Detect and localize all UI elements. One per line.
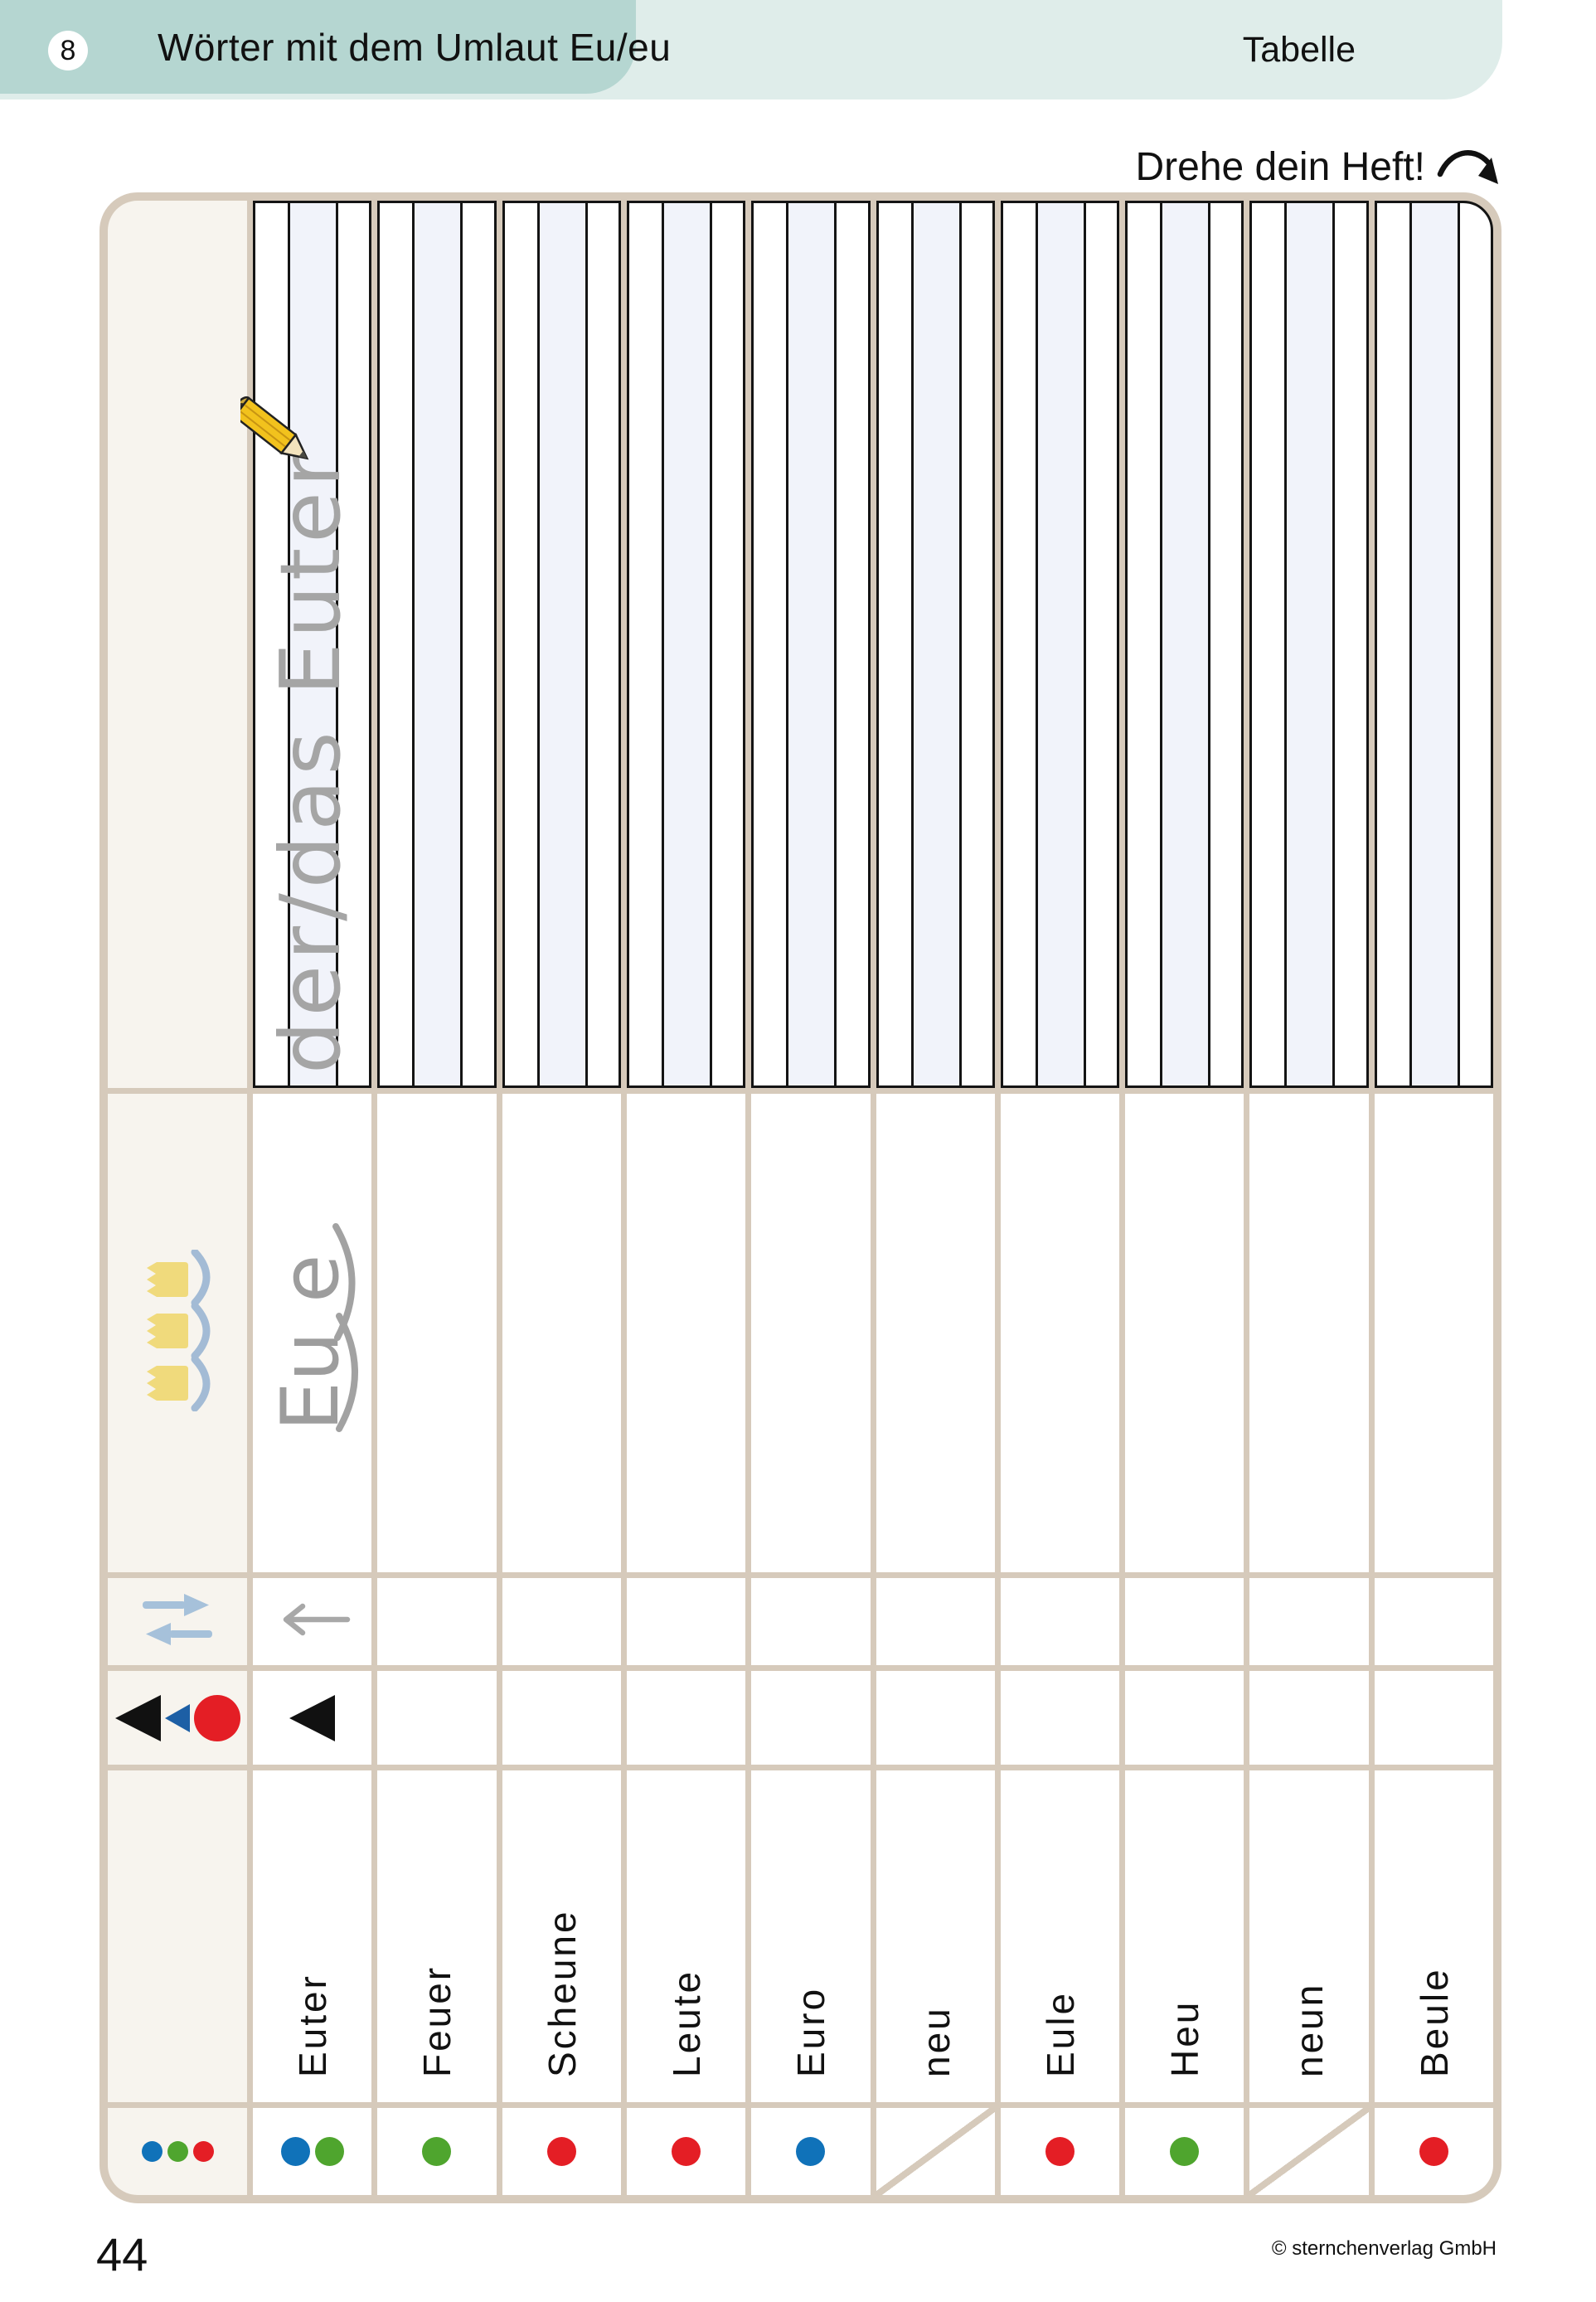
word-cell: Feuer <box>377 1770 496 2102</box>
dot-group <box>751 2108 870 2195</box>
lineature-cell <box>751 201 870 1088</box>
empty-cell <box>1249 1094 1368 1572</box>
header-cell-writing-row <box>108 201 247 1088</box>
header-cell-swap-row <box>108 1578 247 1665</box>
pencil-icon <box>240 376 336 465</box>
word-cell: Scheune <box>502 1770 621 2102</box>
page-number: 44 <box>96 2227 148 2281</box>
dot-cell <box>627 2108 745 2195</box>
dot-group <box>1125 2108 1244 2195</box>
empty-cell <box>1125 1578 1244 1665</box>
word-cell: neu <box>876 1770 995 2102</box>
word-label: Eule <box>1001 1770 1119 2102</box>
empty-cell <box>1249 1578 1368 1665</box>
empty-cell <box>751 1671 870 1765</box>
word-cell: Heu <box>1125 1770 1244 2102</box>
copyright-notice: © sternchenverlag GmbH <box>1272 2237 1497 2261</box>
lineature-cell <box>627 201 745 1088</box>
empty-cell <box>1001 1671 1119 1765</box>
header-cell-marker-row <box>108 1671 247 1765</box>
word-cell: Beule <box>1375 1770 1493 2102</box>
empty-cell <box>751 1578 870 1665</box>
empty-cell <box>627 1671 745 1765</box>
swap-example-cell <box>253 1578 371 1665</box>
syllable-example-graphic: Eu e <box>256 1220 367 1441</box>
word-cell: neun <box>1249 1770 1368 2102</box>
word-label: Leute <box>627 1770 745 2102</box>
word-cell: Euro <box>751 1770 870 2102</box>
empty-cell <box>1375 1578 1493 1665</box>
curved-arrow-icon <box>1437 143 1506 197</box>
dot-green <box>422 2137 451 2166</box>
empty-cell <box>627 1094 745 1572</box>
word-label: Heu <box>1125 1770 1244 2102</box>
empty-cell <box>1001 1578 1119 1665</box>
word-label: Euter <box>253 1770 371 2102</box>
empty-cell <box>1125 1671 1244 1765</box>
empty-cell <box>377 1578 496 1665</box>
lineature-cell <box>502 201 621 1088</box>
black-triangle-icon <box>115 1695 161 1741</box>
empty-cell <box>1375 1094 1493 1572</box>
dot-cell <box>1001 2108 1119 2195</box>
word-cell: Euter <box>253 1770 371 2102</box>
dot-cell <box>377 2108 496 2195</box>
dot-green <box>167 2141 188 2162</box>
lineature-cell <box>1001 201 1119 1088</box>
dot-group <box>876 2108 995 2195</box>
dot-cell <box>1125 2108 1244 2195</box>
syllable-crowns-icon <box>145 1250 221 1416</box>
rotate-instruction: Drehe dein Heft! <box>1135 143 1506 197</box>
empty-cell <box>502 1578 621 1665</box>
word-cell: Leute <box>627 1770 745 2102</box>
word-label: Euro <box>751 1770 870 2102</box>
rotated-table: der/das Euter <box>99 192 1501 2203</box>
dot-cell <box>751 2108 870 2195</box>
dot-group <box>1001 2108 1119 2195</box>
trace-word: der/das Euter <box>255 203 364 1081</box>
empty-cell <box>1249 1671 1368 1765</box>
dot-group <box>1375 2108 1493 2195</box>
empty-cell <box>377 1094 496 1572</box>
syllable-example-cell: Eu e <box>253 1094 371 1572</box>
empty-cell <box>502 1094 621 1572</box>
dot-blue <box>796 2137 825 2166</box>
word-label: Beule <box>1375 1770 1493 2102</box>
empty-cell <box>876 1671 995 1765</box>
empty-cell <box>1375 1671 1493 1765</box>
empty-cell <box>1001 1094 1119 1572</box>
lesson-number-badge: 8 <box>48 31 88 70</box>
dot-red <box>547 2137 576 2166</box>
dot-red <box>1045 2137 1075 2166</box>
header-cell-syllable-row <box>108 1094 247 1572</box>
empty-cell <box>502 1671 621 1765</box>
swap-arrows-icon <box>143 1594 212 1649</box>
dot-cell <box>876 2108 995 2195</box>
left-arrow-icon <box>274 1600 351 1643</box>
empty-cell <box>876 1578 995 1665</box>
empty-cell <box>1125 1094 1244 1572</box>
blue-triangle-icon <box>165 1704 190 1732</box>
dot-cell <box>1249 2108 1368 2195</box>
word-label: neun <box>1249 1770 1368 2102</box>
dot-cell <box>502 2108 621 2195</box>
dot-green <box>315 2137 344 2166</box>
lineature-cell <box>876 201 995 1088</box>
dot-group <box>377 2108 496 2195</box>
lineature-cell <box>1249 201 1368 1088</box>
dot-group <box>1249 2108 1368 2195</box>
dot-cell <box>253 2108 371 2195</box>
word-label: Feuer <box>377 1770 496 2102</box>
dot-blue <box>142 2141 163 2162</box>
dot-group <box>253 2108 371 2195</box>
empty-cell <box>377 1671 496 1765</box>
dot-legend <box>108 2108 247 2195</box>
dot-cell <box>1375 2108 1493 2195</box>
dot-legend-cell <box>108 2108 247 2195</box>
dot-group <box>627 2108 745 2195</box>
dot-blue <box>281 2137 310 2166</box>
worksheet-page: Tabelle 8 Wörter mit dem Umlaut Eu/eu Dr… <box>0 0 1596 2302</box>
black-triangle-icon <box>289 1695 335 1741</box>
header-cell-words-row <box>108 1770 247 2102</box>
empty-cell <box>876 1094 995 1572</box>
page-category-label: Tabelle <box>1243 0 1356 100</box>
word-label: Scheune <box>502 1770 621 2102</box>
dot-red <box>1419 2137 1448 2166</box>
lineature-cell-euter: der/das Euter <box>253 201 371 1088</box>
word-cell: Eule <box>1001 1770 1119 2102</box>
lineature-cell <box>377 201 496 1088</box>
empty-cell <box>751 1094 870 1572</box>
dot-red <box>672 2137 701 2166</box>
lineature-cell <box>1125 201 1244 1088</box>
lineature-cell <box>1375 201 1493 1088</box>
syllable-second: e <box>265 1255 357 1303</box>
red-dot-icon <box>194 1695 240 1741</box>
dot-group <box>502 2108 621 2195</box>
dot-red <box>193 2141 214 2162</box>
rotate-instruction-text: Drehe dein Heft! <box>1135 143 1425 192</box>
empty-cell <box>627 1578 745 1665</box>
lesson-title: Wörter mit dem Umlaut Eu/eu <box>158 0 671 94</box>
word-label: neu <box>876 1770 995 2102</box>
dot-green <box>1170 2137 1199 2166</box>
marker-example-cell <box>253 1671 371 1765</box>
